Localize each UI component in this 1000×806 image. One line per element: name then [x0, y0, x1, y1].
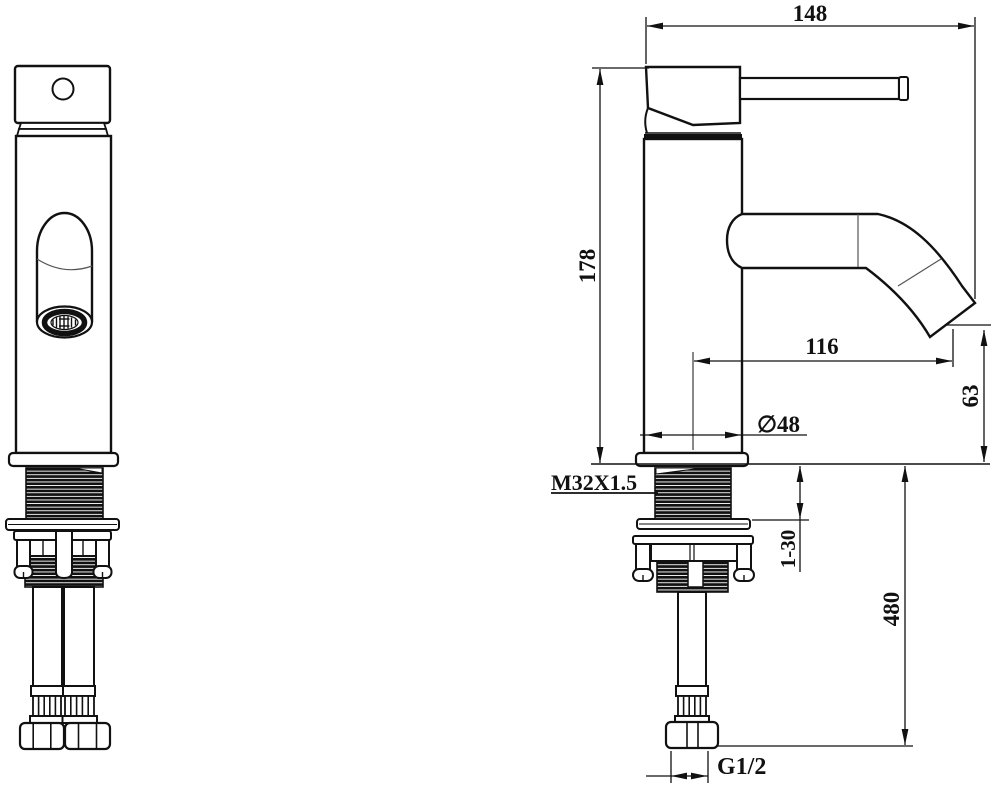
arrowhead-down-icon [597, 447, 604, 463]
dim-shank-thread: M32X1.5 [551, 470, 658, 495]
arrowhead-down-icon [797, 503, 804, 519]
side-supply-hose [666, 592, 718, 748]
dim-outlet-height: 63 [958, 330, 987, 462]
dim-label-hose-length: 480 [879, 592, 904, 627]
side-mounting-nut [651, 544, 747, 561]
front-handle-screw-hole [53, 79, 74, 100]
dim-hose-length: 480 [718, 466, 913, 746]
side-shank-thread-upper [655, 468, 731, 519]
arrowhead-down-icon [902, 729, 909, 745]
dim-label-inlet-thread: G1/2 [717, 754, 766, 780]
front-base-plate [9, 453, 118, 466]
side-gasket-ring [633, 536, 753, 544]
side-collar-curve [645, 108, 648, 133]
side-spout [727, 214, 975, 337]
side-hose-ferrule [676, 686, 708, 696]
hose-hex-nut-right [65, 723, 110, 749]
hose-ferrule-right [63, 686, 95, 696]
arrowhead-right-icon [936, 358, 952, 365]
dim-inlet-thread: G1/2 [646, 751, 766, 783]
technical-drawing-page: 148 178 116 63 [0, 0, 1000, 801]
arrowhead-up-icon [981, 330, 988, 346]
front-aerator [37, 307, 92, 338]
arrowhead-up-icon [902, 466, 909, 482]
arrowhead-down-icon [981, 446, 988, 462]
front-view [6, 66, 119, 749]
side-handle-head [646, 67, 740, 125]
dim-label-height-overall: 178 [575, 249, 600, 284]
dim-label-reach-overall: 148 [793, 1, 828, 26]
arrowhead-left-icon [671, 773, 687, 780]
dim-height-overall: 178 [575, 68, 649, 463]
hose-crimp-left [33, 696, 61, 716]
side-handle-lever [740, 78, 899, 99]
dim-label-body-diameter: ∅48 [757, 412, 800, 437]
dim-label-spout-reach: 116 [805, 334, 838, 359]
arrowhead-up-icon [797, 466, 804, 482]
side-hose-hex-nut [666, 722, 718, 748]
hose-hex-nut-left [20, 723, 64, 749]
front-shank-thread-upper [26, 468, 103, 519]
arrowhead-right-icon [691, 773, 707, 780]
dim-label-deck-thickness: 1-30 [776, 530, 800, 569]
front-supply-hoses [20, 587, 110, 749]
aerator-mesh-ticks [53, 316, 76, 329]
arrowhead-right-icon [958, 23, 974, 30]
dim-label-outlet-height: 63 [958, 385, 983, 408]
hose-crimp-right [65, 696, 94, 716]
side-view [633, 67, 975, 748]
hose-tube-left [33, 587, 62, 686]
side-center-stud [688, 559, 703, 587]
dimensions: 148 178 116 63 [551, 1, 991, 783]
dim-label-shank-thread: M32X1.5 [551, 470, 637, 495]
front-center-stud [56, 531, 72, 578]
hose-ferrule-left [31, 686, 63, 696]
arrowhead-up-icon [597, 69, 604, 85]
side-hose-crimp [678, 696, 706, 716]
dim-deck-thickness: 1-30 [752, 466, 809, 572]
arrowhead-left-icon [647, 23, 663, 30]
side-lever-end-cap [899, 77, 908, 100]
side-hose-tube [678, 592, 706, 686]
hose-tube-right [64, 587, 94, 686]
faucet-technical-drawing: 148 178 116 63 [0, 0, 1000, 801]
